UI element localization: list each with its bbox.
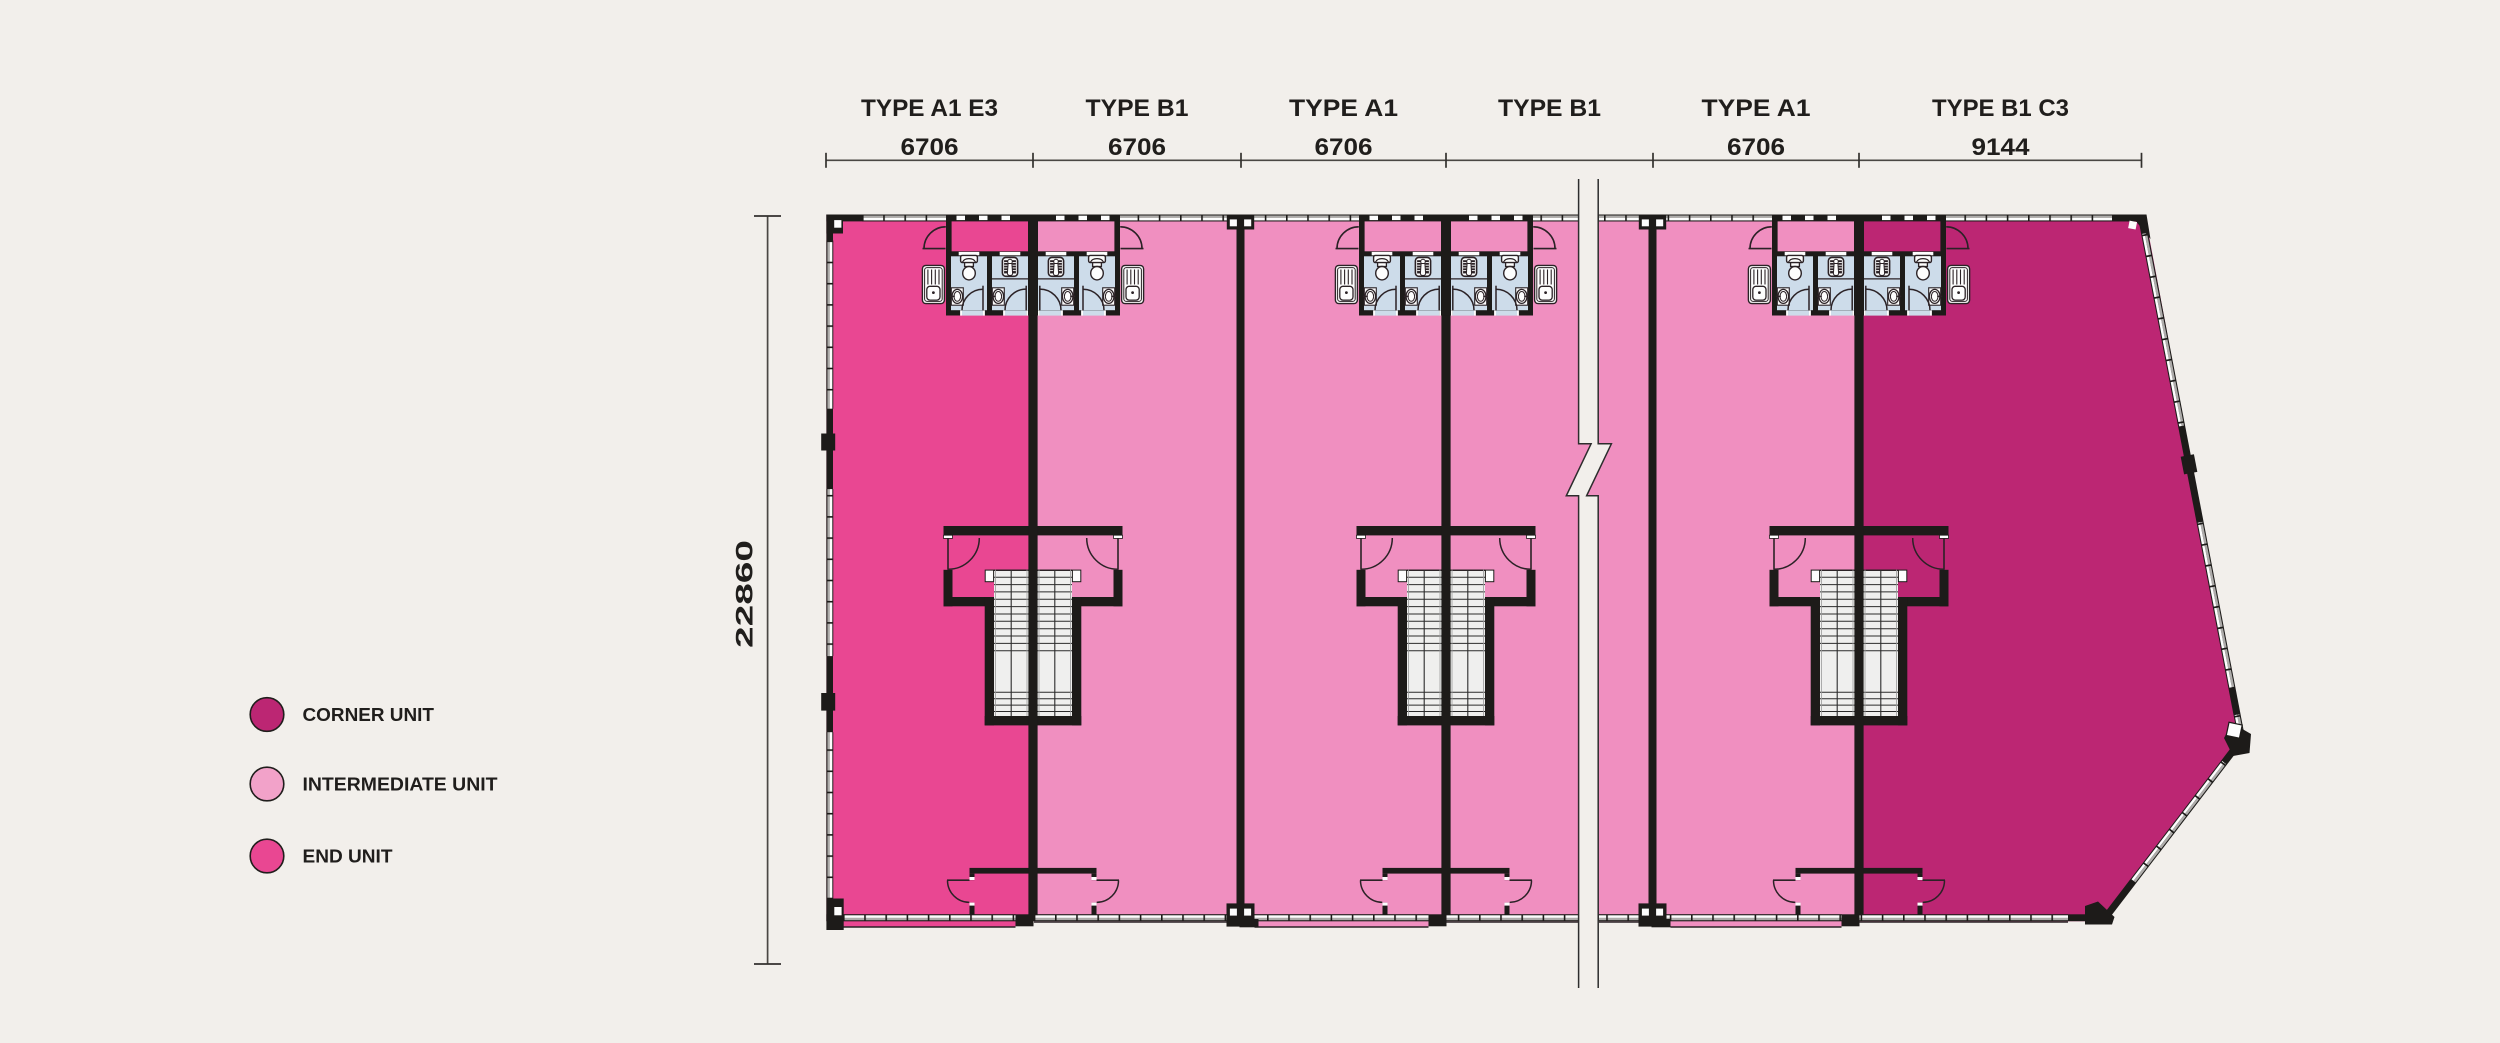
svg-text:INTERMEDIATE UNIT: INTERMEDIATE UNIT bbox=[303, 774, 499, 795]
svg-text:6706: 6706 bbox=[1108, 134, 1166, 161]
svg-text:22860: 22860 bbox=[732, 540, 759, 648]
svg-text:TYPE B1: TYPE B1 bbox=[1086, 95, 1189, 122]
svg-text:TYPE A1 E3: TYPE A1 E3 bbox=[861, 95, 998, 122]
svg-text:END UNIT: END UNIT bbox=[303, 846, 394, 867]
svg-text:CORNER UNIT: CORNER UNIT bbox=[303, 704, 435, 725]
svg-text:9144: 9144 bbox=[1972, 134, 2031, 161]
svg-text:TYPE B1: TYPE B1 bbox=[1498, 95, 1601, 122]
svg-text:6706: 6706 bbox=[1315, 134, 1373, 161]
svg-text:TYPE A1: TYPE A1 bbox=[1702, 95, 1811, 122]
svg-text:TYPE A1: TYPE A1 bbox=[1289, 95, 1398, 122]
svg-text:6706: 6706 bbox=[1727, 134, 1785, 161]
svg-text:6706: 6706 bbox=[901, 134, 959, 161]
svg-text:TYPE B1 C3: TYPE B1 C3 bbox=[1932, 95, 2069, 122]
